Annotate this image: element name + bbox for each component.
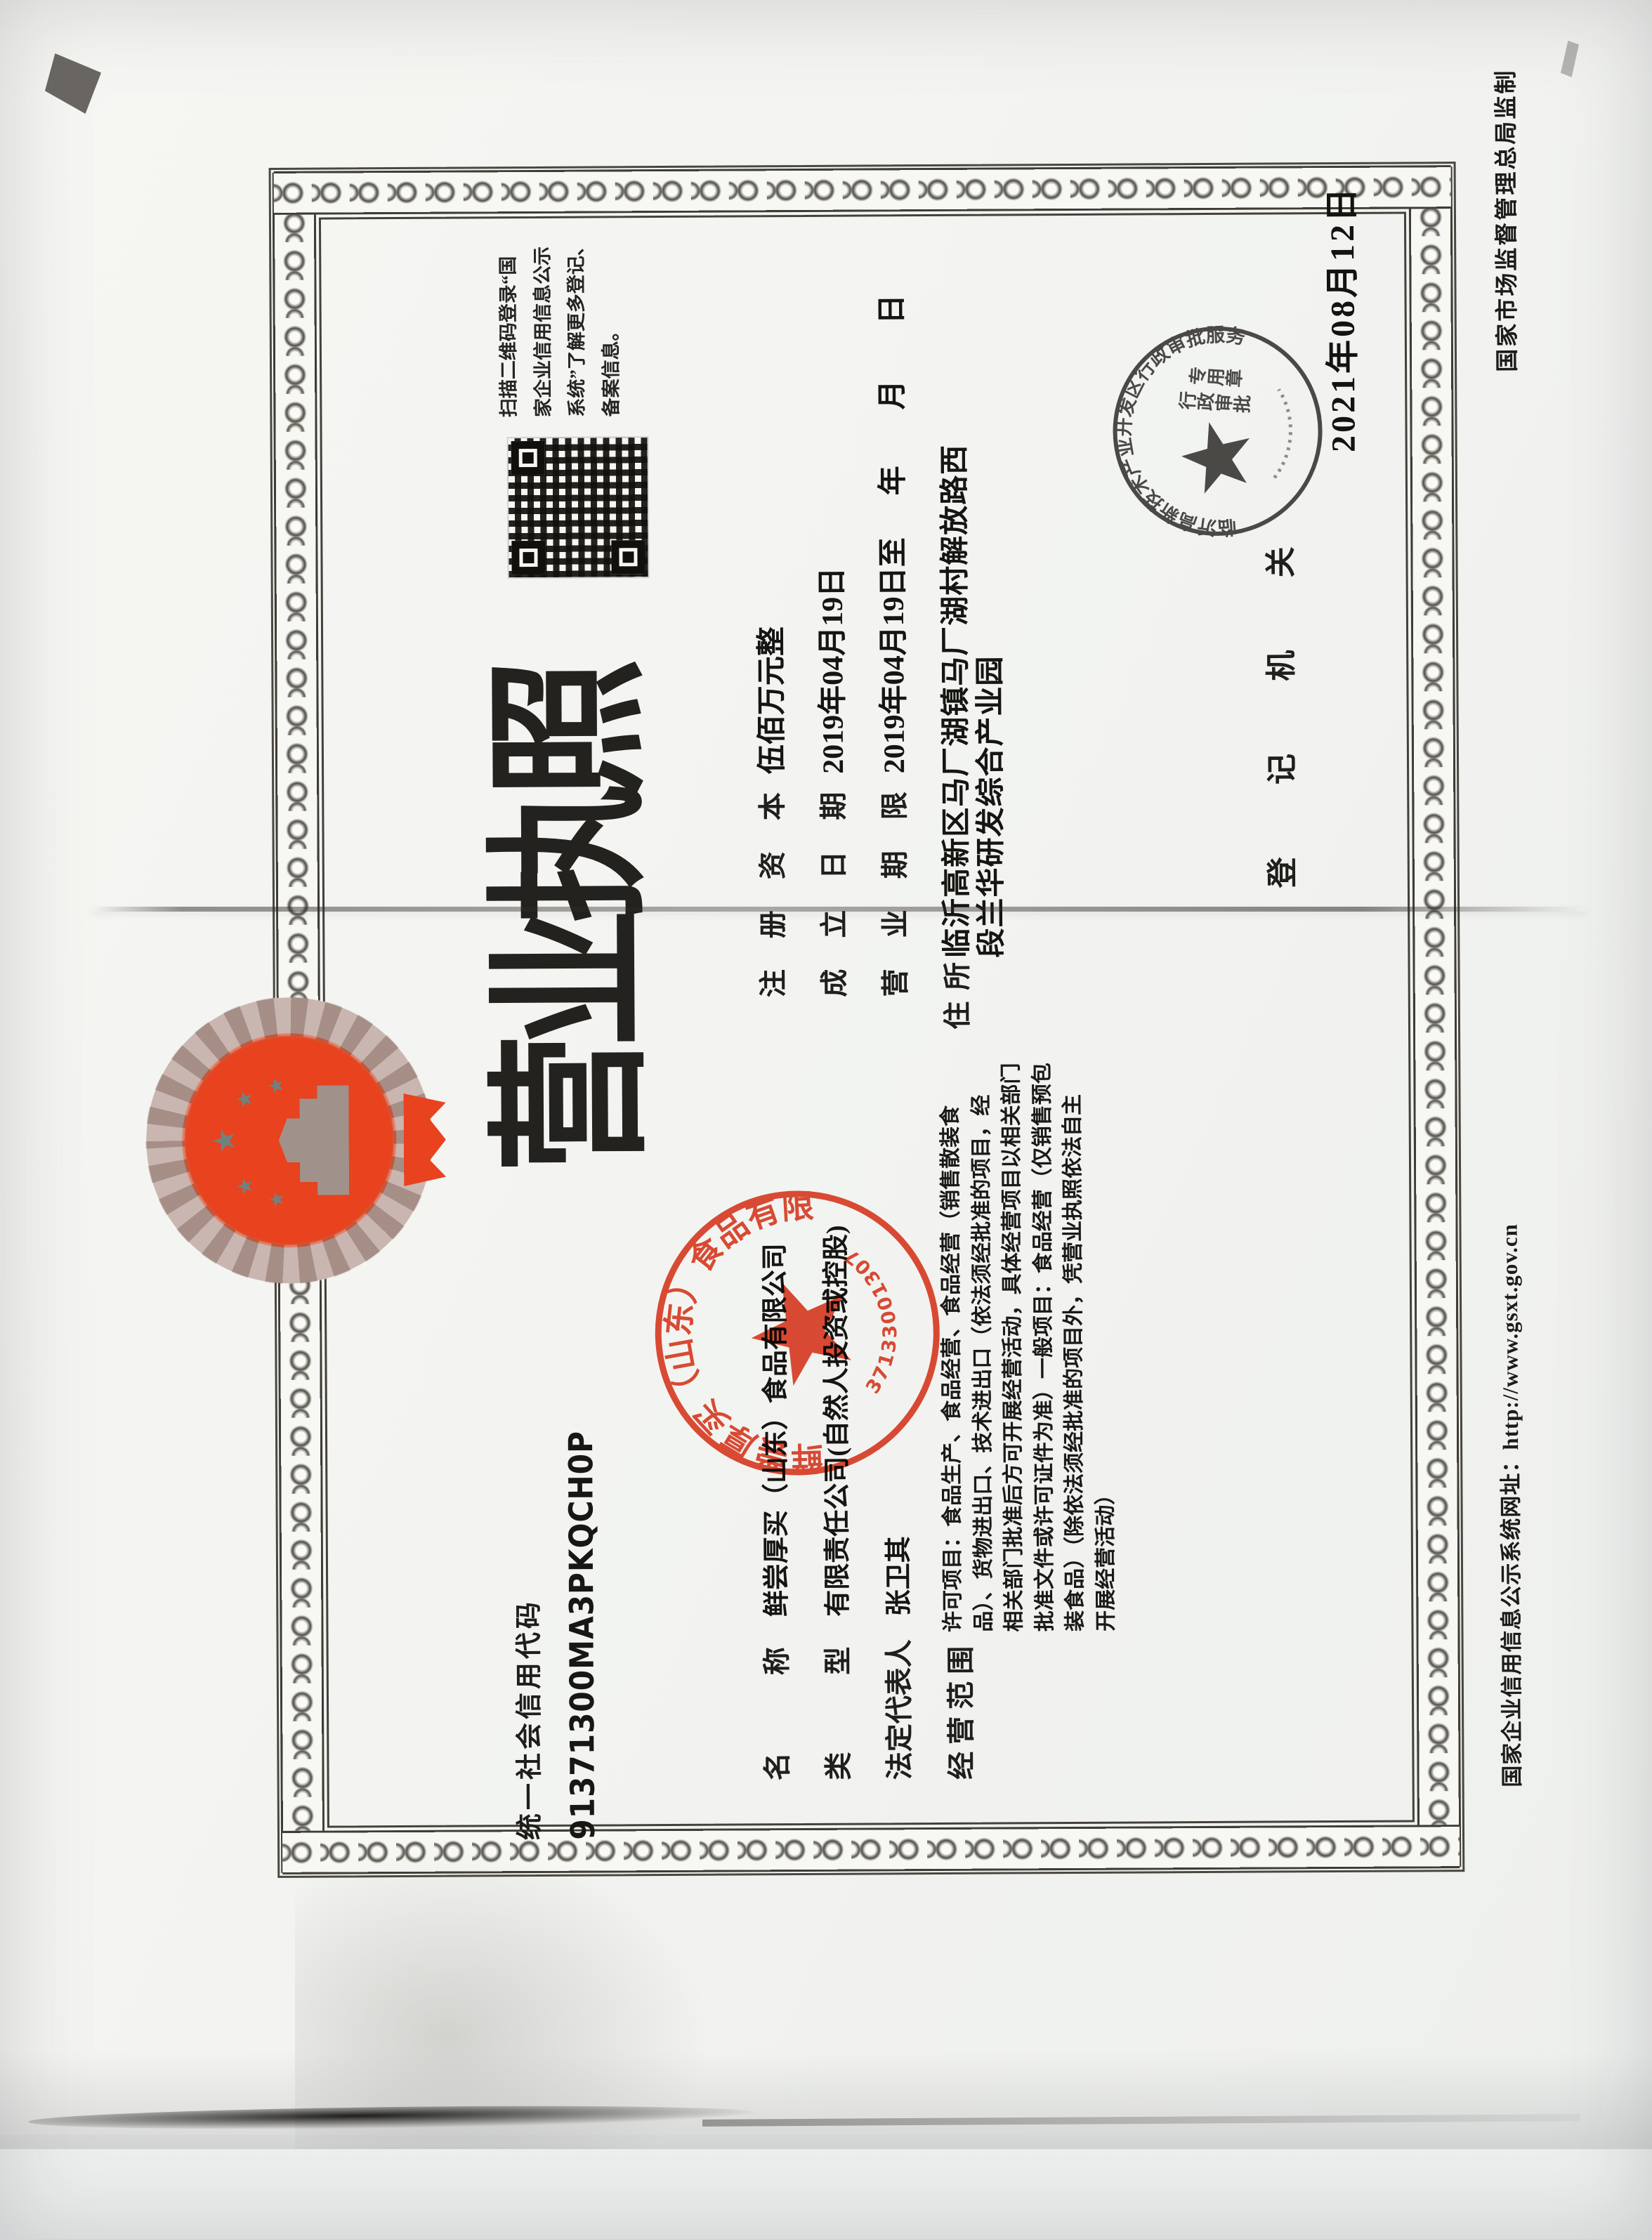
field-value-established: 2019年04月19日 bbox=[815, 567, 852, 774]
company-seal-star-icon bbox=[746, 1276, 853, 1390]
registration-date: 2021年08月12日 bbox=[1323, 185, 1365, 601]
authority-stamp-center-left: 专用章 bbox=[1187, 367, 1243, 390]
emblem-ribbon bbox=[403, 1094, 446, 1186]
frame-band-right bbox=[274, 165, 1451, 215]
term-blank-year: 年 bbox=[876, 466, 911, 495]
field-value-scope: 许可项目：食品生产、食品经营、食品经营（销售散装食 品）、货物进出口、技术进出口… bbox=[935, 1056, 1121, 1632]
registration-authority-label: 登记机关 bbox=[1264, 546, 1301, 888]
field-label-scope: 经营范围 bbox=[944, 1646, 980, 1780]
field-value-address-line2: 段兰华研发综合产业园 bbox=[973, 655, 1009, 957]
field-label-name: 名称 bbox=[760, 1647, 796, 1780]
authority-stamp: 临沂高新技术产业开发区行政审批服务局 行政审批 专用章 bbox=[1107, 320, 1329, 542]
qr-note-line: 备案信息。 bbox=[594, 237, 629, 416]
publicity-system-url: 国家企业信用信息公示系统网址：http://www.gsxt.gov.cn bbox=[1496, 1223, 1525, 1787]
field-value-term: 2019年04月19日至年月日 bbox=[875, 294, 913, 773]
qr-code bbox=[509, 438, 648, 577]
qr-finder-icon bbox=[611, 540, 645, 574]
authority-stamp-center-right: 行政审批 bbox=[1176, 390, 1252, 416]
authority-stamp-star-icon bbox=[1179, 421, 1250, 497]
field-value-capital: 伍佰万元整 bbox=[754, 626, 790, 774]
qr-note-line: 家企业信用信息公示 bbox=[525, 237, 560, 417]
company-seal-stamp: 鲜尝厚买（山东）食品有限公司 3713300130705 bbox=[646, 1182, 948, 1484]
paper-bottom-shadow bbox=[0, 2051, 1652, 2149]
scope-line: 品）、货物进出口、技术进出口（依法须经批准的项目，经 bbox=[966, 1056, 999, 1632]
title-char: 营 bbox=[469, 1061, 682, 1174]
scope-line: 相关部门批准后方可开展经营活动，具体经营项目以相关部门 bbox=[996, 1056, 1030, 1631]
authority-stamp-ring-text: 临沂高新技术产业开发区行政审批服务局 bbox=[1107, 320, 1252, 542]
field-label-term: 营业期限 bbox=[877, 792, 914, 997]
qr-note-text: 扫描二维码登录“国 家企业信用信息公示 系统”了解更多登记、 备案信息。 bbox=[491, 237, 628, 417]
title-char: 照 bbox=[467, 686, 680, 799]
svg-text:临沂高新技术产业开发区行政审批服务局: 临沂高新技术产业开发区行政审批服务局 bbox=[1107, 320, 1252, 542]
qr-note-line: 系统”了解更多登记、 bbox=[559, 237, 594, 417]
scope-line: 批准文件或许可证件为准）一般项目：食品经营（仅销售预包 bbox=[1027, 1056, 1061, 1631]
producer-note: 国家市场监督管理总局监制 bbox=[1492, 69, 1521, 372]
credit-code-value: 91371300MA3PKQCH0P bbox=[563, 1431, 602, 1840]
scanned-business-license-page: 统一社会信用代码 91371300MA3PKQCH0P 营 业 执 照 扫描二维… bbox=[0, 0, 1652, 2239]
field-label-established: 成立日期 bbox=[816, 792, 853, 997]
term-blank-day: 日 bbox=[875, 294, 910, 324]
qr-finder-icon bbox=[511, 441, 545, 475]
national-emblem-icon bbox=[145, 996, 434, 1285]
scope-line: 开展经营活动） bbox=[1088, 1056, 1122, 1631]
field-label-address: 住所 bbox=[940, 962, 976, 1030]
field-value-legal-rep: 张卫其 bbox=[881, 1536, 917, 1616]
qr-finder-icon bbox=[511, 541, 545, 574]
authority-stamp-serial-dots bbox=[1273, 389, 1293, 478]
license-document-rotated: 统一社会信用代码 91371300MA3PKQCH0P 营 业 执 照 扫描二维… bbox=[0, 0, 1652, 2238]
term-start: 2019年04月19日至 bbox=[876, 537, 912, 773]
fold-crease-line bbox=[91, 907, 1587, 912]
scope-line: 装食品）（除依法须经批准的项目外，凭营业执照依法自主 bbox=[1057, 1056, 1091, 1631]
term-blank-month: 月 bbox=[875, 380, 910, 409]
license-title: 营 业 执 照 bbox=[483, 686, 666, 1173]
field-label-type: 类型 bbox=[821, 1647, 857, 1780]
field-value-address-line1: 临沂高新区马厂湖镇马厂湖村解放路西 bbox=[938, 445, 976, 958]
title-char: 业 bbox=[468, 936, 681, 1049]
frame-band-bottom bbox=[1409, 166, 1462, 1867]
field-label-legal-rep: 法定代表人 bbox=[882, 1646, 918, 1780]
credit-code-label: 统一社会信用代码 bbox=[515, 1598, 546, 1840]
field-label-capital: 注册资本 bbox=[755, 792, 792, 997]
qr-note-line: 扫描二维码登录“国 bbox=[491, 237, 526, 417]
